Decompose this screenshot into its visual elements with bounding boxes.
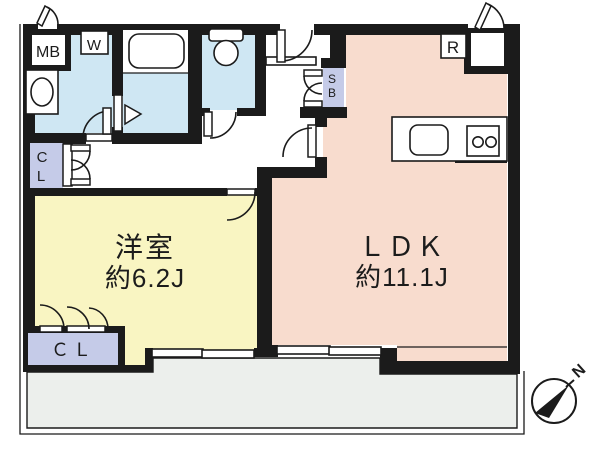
washer-label: W	[87, 37, 102, 54]
meter-box-door	[37, 6, 58, 26]
toilet-bowl	[214, 41, 238, 66]
wall-toilet-entry	[255, 24, 266, 116]
refrigerator-label: R	[447, 38, 459, 57]
closet-upper-doors	[63, 144, 90, 186]
toilet-tank	[209, 29, 243, 41]
entrance-step	[266, 57, 316, 65]
wall-step-right	[380, 348, 397, 374]
washbasin-bowl	[31, 78, 53, 106]
western-room-floor-pocket	[125, 340, 145, 367]
shoe-box-doors	[304, 70, 322, 107]
floor-plan: N 洋室 約6.2J ＬＤＫ 約11.1J MB W R C L S B ＣＬ	[0, 0, 600, 450]
floor-plan-canvas: N 洋室 約6.2J ＬＤＫ 約11.1J MB W R C L S B ＣＬ	[0, 0, 600, 450]
wall-bath-toilet	[188, 24, 202, 144]
shoe-box-label-1: S	[328, 72, 336, 86]
wall-right	[508, 24, 520, 374]
ldk-window-left	[277, 346, 330, 354]
bathtub	[129, 34, 184, 68]
refrigerator-nook	[471, 33, 504, 66]
wall-bottom-right	[397, 361, 510, 374]
wall-wash-bath-upper	[112, 24, 123, 96]
western-room-window-right	[202, 350, 254, 358]
compass: N	[532, 361, 589, 423]
wall-ldk-west-3	[257, 167, 327, 178]
stove-burner-1	[473, 137, 483, 147]
wall-ldk-west-1	[315, 107, 327, 127]
ldk-area: 約11.1J	[355, 262, 449, 292]
ldk-floor-topright	[464, 73, 507, 111]
wall-over-shoebox	[321, 58, 346, 68]
ldk-window-right	[329, 347, 381, 355]
toilet-door	[204, 112, 236, 138]
western-room-area: 約6.2J	[105, 263, 185, 293]
wall-room-divider	[257, 178, 272, 357]
western-room-window-left	[152, 349, 203, 357]
nook-door	[475, 3, 504, 30]
meter-box-label: MB	[36, 44, 60, 61]
ldk-label: ＬＤＫ	[359, 232, 446, 262]
wall-toilet-bottom-2	[237, 108, 266, 116]
north-label: N	[569, 361, 589, 381]
western-room-label: 洋室	[115, 232, 175, 263]
closet-upper-label-2: L	[37, 168, 45, 185]
shoe-box-label-2: B	[328, 86, 336, 100]
wall-hall-bottom-2	[255, 188, 268, 196]
stove-burner-2	[486, 137, 496, 147]
ldk-door	[283, 125, 316, 157]
closet-lower-label: ＣＬ	[51, 340, 95, 360]
wall-hall-bottom-1	[23, 188, 227, 196]
wall-hall-top-left	[23, 133, 86, 144]
wall-bottom-left	[23, 365, 145, 372]
closet-upper-label-1: C	[37, 149, 48, 166]
kitchen-sink	[410, 125, 448, 155]
